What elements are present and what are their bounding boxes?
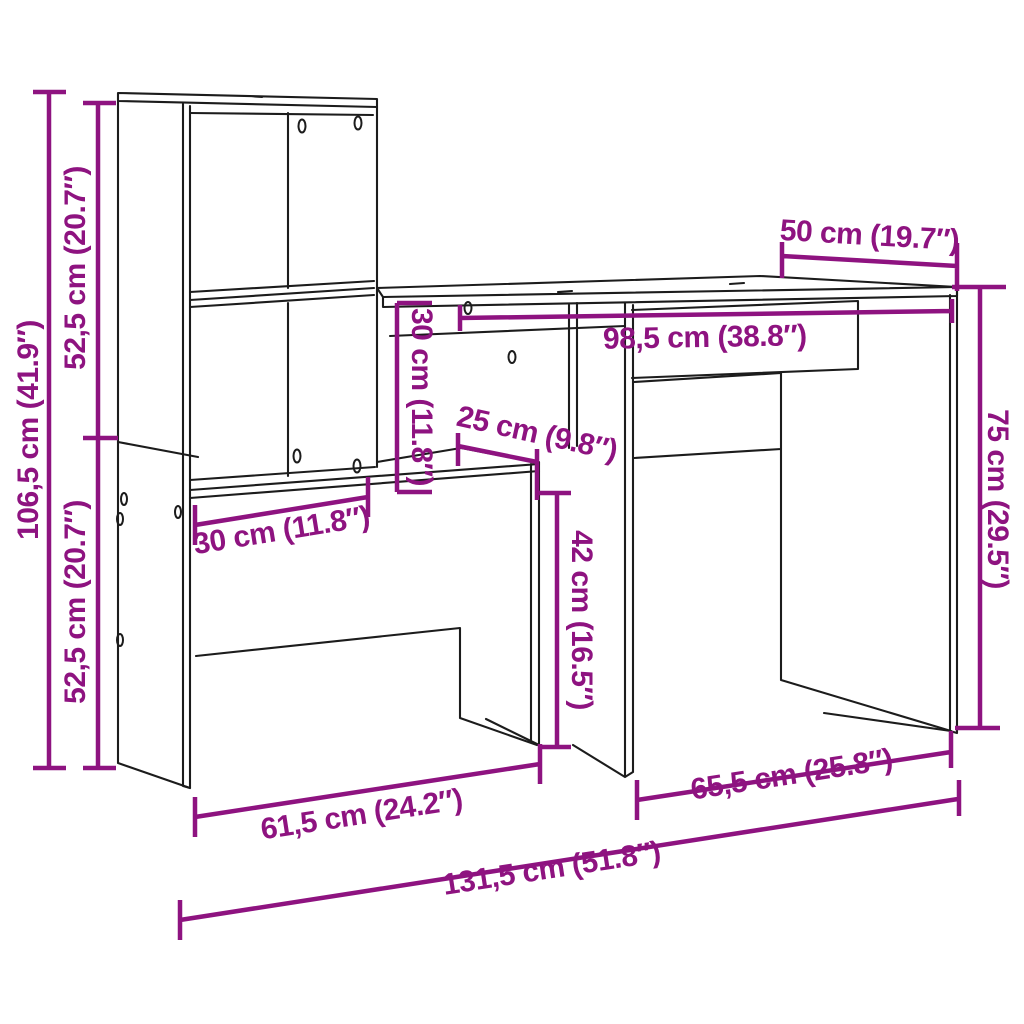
dim-left-section-width: 61,5 cm (24.2″) [195, 744, 540, 846]
screw-holes [117, 117, 516, 647]
dim-overall-height-label: 106,5 cm (41.9″) [12, 320, 45, 540]
dim-desk-height-label: 75 cm (29.5″) [981, 409, 1014, 589]
dim-desk-height: 75 cm (29.5″) [952, 287, 1014, 728]
dim-shelf-depth: 25 cm (9.8″) [454, 400, 621, 500]
lower-back-panel [196, 628, 537, 745]
desk-top [377, 276, 957, 307]
shelf-tower-middle-shelf [190, 281, 374, 307]
dim-upper-section-height-label: 52,5 cm (20.7″) [59, 166, 92, 370]
shelf-tower-top [118, 93, 377, 107]
dim-lower-section-height-label: 52,5 cm (20.7″) [59, 500, 92, 704]
dimension-annotations: 106,5 cm (41.9″) 52,5 cm (20.7″) 52,5 cm… [12, 92, 1014, 940]
shelf-tower-front-left-edge [183, 104, 190, 788]
shelf-tower-opening-top-edge [190, 113, 373, 115]
mid-shelf [190, 448, 539, 498]
dim-desk-depth-label: 50 cm (19.7″) [779, 214, 960, 257]
dim-under-shelf-height-label: 42 cm (16.5″) [565, 530, 598, 710]
dim-right-section-width-label: 65,5 cm (25.8″) [688, 743, 894, 807]
shelf-lower-side-panel [486, 462, 539, 745]
dim-overall-width: 131,5 cm (51.8″) [180, 780, 959, 940]
dimension-diagram-page: 106,5 cm (41.9″) 52,5 cm (20.7″) 52,5 cm… [0, 0, 1024, 1024]
dim-shelf-drop-label: 30 cm (11.8″) [405, 308, 438, 486]
dim-tower-width: 30 cm (11.8″) [191, 477, 372, 561]
dim-lower-section-height: 52,5 cm (20.7″) [59, 438, 116, 768]
drawer-box [634, 373, 951, 731]
dim-overall-width-label: 131,5 cm (51.8″) [440, 835, 662, 901]
right-side-panel [824, 287, 957, 733]
diagram-canvas: 106,5 cm (41.9″) 52,5 cm (20.7″) 52,5 cm… [0, 0, 1024, 1024]
dim-under-shelf-height: 42 cm (16.5″) [538, 493, 598, 747]
dim-upper-section-height: 52,5 cm (20.7″) [59, 103, 118, 438]
dim-overall-height: 106,5 cm (41.9″) [12, 92, 66, 768]
shelf-tower-seam [118, 442, 198, 457]
dim-shelf-drop: 30 cm (11.8″) [397, 303, 438, 492]
dim-desktop-width-label: 98,5 cm (38.8″) [603, 319, 807, 356]
